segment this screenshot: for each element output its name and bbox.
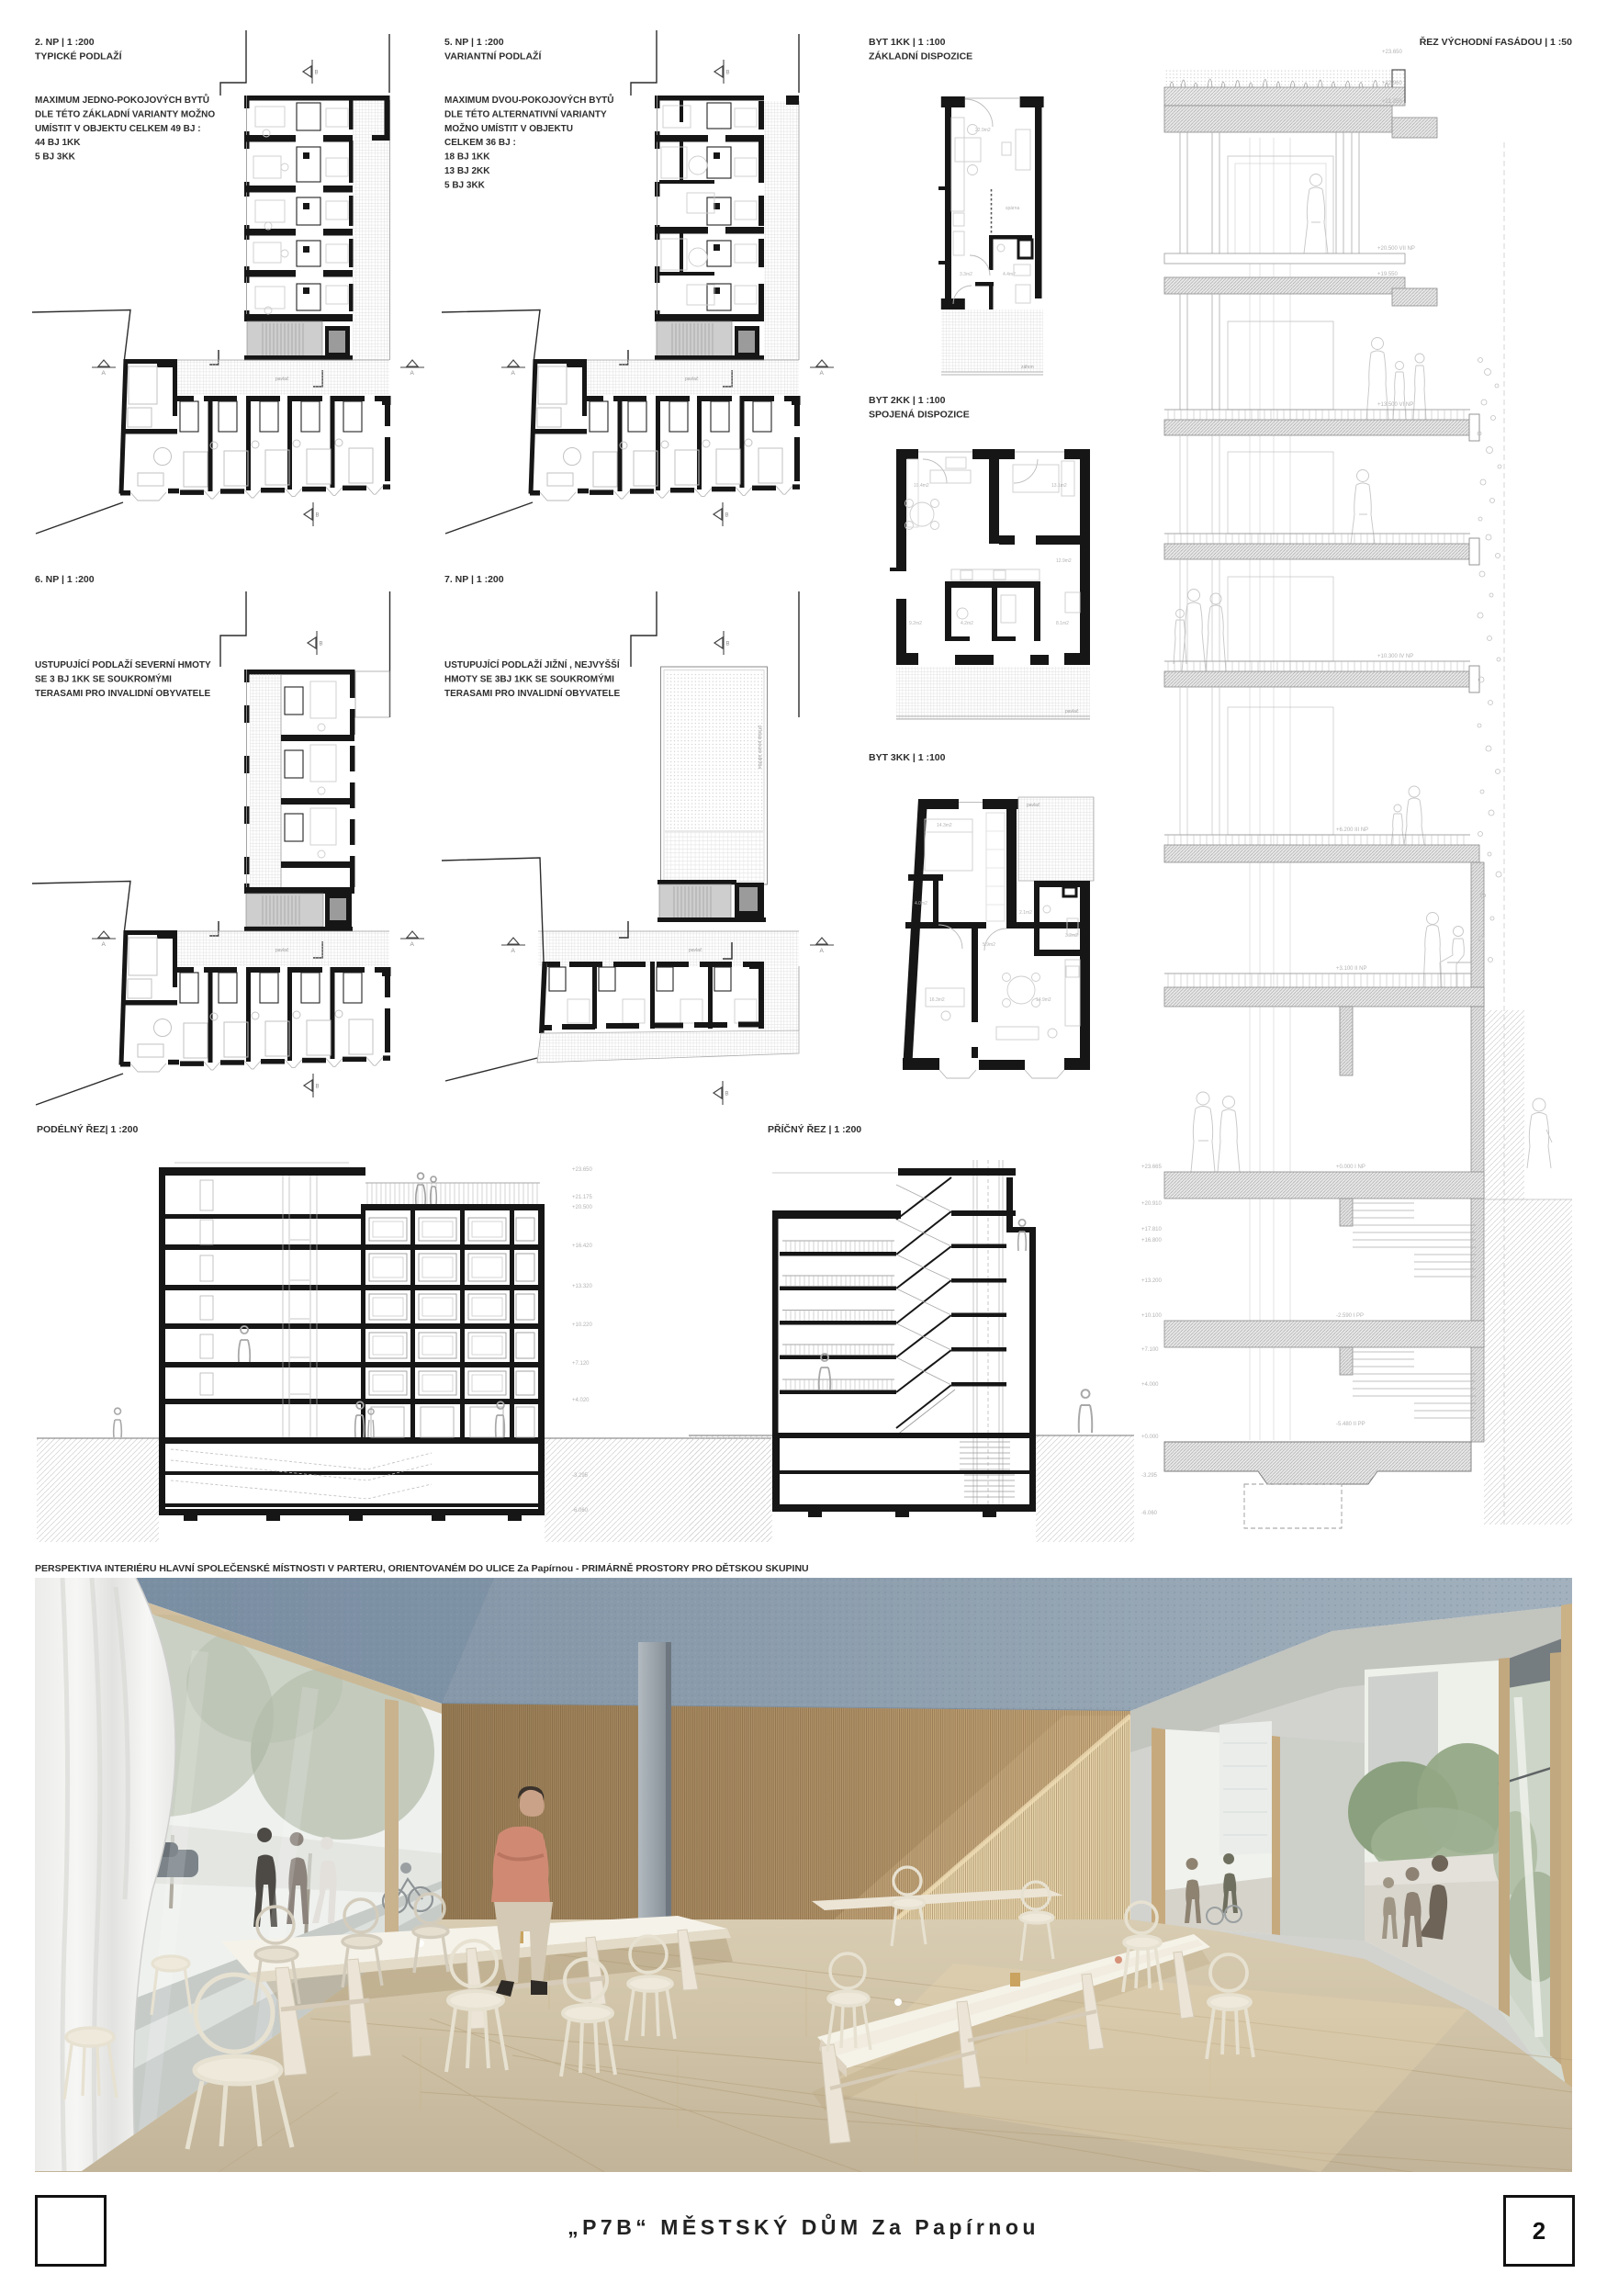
svg-text:+19.550: +19.550 xyxy=(1377,272,1399,277)
svg-text:VARIANTNÍ PODLAŽÍ: VARIANTNÍ PODLAŽÍ xyxy=(444,51,542,62)
svg-text:záhon: záhon xyxy=(1021,365,1034,370)
svg-text:5 BJ 3KK: 5 BJ 3KK xyxy=(444,180,486,190)
svg-text:-6.060: -6.060 xyxy=(1141,1511,1158,1516)
svg-text:14.9m2: 14.9m2 xyxy=(1036,997,1051,1003)
svg-text:DLE TÉTO ALTERNATIVNÍ VARIANTY: DLE TÉTO ALTERNATIVNÍ VARIANTY xyxy=(444,107,607,119)
svg-text:spárna: spárna xyxy=(1006,206,1020,211)
svg-text:+22.960: +22.960 xyxy=(1382,81,1403,86)
svg-text:+23.650: +23.650 xyxy=(572,1167,593,1173)
svg-text:HMOTY SE 3BJ 1KK SE SOUKROMÝMI: HMOTY SE 3BJ 1KK SE SOUKROMÝMI xyxy=(444,672,614,684)
svg-text:+7.100: +7.100 xyxy=(1141,1347,1159,1353)
svg-text:USTUPUJÍCÍ PODLAŽÍ SEVERNÍ HMO: USTUPUJÍCÍ PODLAŽÍ SEVERNÍ HMOTY xyxy=(35,658,211,670)
svg-text:BYT 2KK | 1 :100: BYT 2KK | 1 :100 xyxy=(869,395,946,406)
svg-text:-3.295: -3.295 xyxy=(1141,1473,1158,1479)
svg-text:5. NP | 1 :200: 5. NP | 1 :200 xyxy=(444,37,504,48)
svg-text:+20.910: +20.910 xyxy=(1141,1201,1163,1207)
svg-text:MAXIMUM JEDNO-POKOJOVÝCH BYTŮ: MAXIMUM JEDNO-POKOJOVÝCH BYTŮ xyxy=(35,93,209,106)
svg-text:PŘÍČNÝ ŘEZ | 1 :200: PŘÍČNÝ ŘEZ | 1 :200 xyxy=(768,1123,861,1135)
svg-text:BYT 3KK | 1 :100: BYT 3KK | 1 :100 xyxy=(869,752,946,763)
svg-text:+20.500 VII NP: +20.500 VII NP xyxy=(1377,246,1415,252)
svg-text:TYPICKÉ PODLAŽÍ: TYPICKÉ PODLAŽÍ xyxy=(35,51,123,62)
svg-text:+10.100: +10.100 xyxy=(1141,1313,1163,1319)
svg-text:+20.500: +20.500 xyxy=(572,1205,593,1210)
svg-text:pavlač: pavlač xyxy=(1027,803,1040,808)
svg-text:+4.000: +4.000 xyxy=(1141,1382,1159,1388)
svg-text:+13.500 VI NP: +13.500 VI NP xyxy=(1377,402,1413,408)
svg-text:+13.320: +13.320 xyxy=(572,1284,593,1289)
svg-text:7. NP | 1 :200: 7. NP | 1 :200 xyxy=(444,574,504,585)
svg-text:+16.420: +16.420 xyxy=(572,1244,593,1249)
svg-text:9.2m2: 9.2m2 xyxy=(909,621,922,626)
svg-text:TERASAMI PRO INVALIDNÍ OBYVATE: TERASAMI PRO INVALIDNÍ OBYVATELE xyxy=(35,687,210,699)
svg-text:ŘEZ VÝCHODNÍ FASÁDOU | 1 :50: ŘEZ VÝCHODNÍ FASÁDOU | 1 :50 xyxy=(1420,36,1572,48)
svg-text:MAXIMUM DVOU-POKOJOVÝCH BYTŮ: MAXIMUM DVOU-POKOJOVÝCH BYTŮ xyxy=(444,93,613,106)
svg-text:18 BJ 1KK: 18 BJ 1KK xyxy=(444,152,490,163)
svg-text:4.2m2: 4.2m2 xyxy=(961,621,973,626)
svg-text:+7.120: +7.120 xyxy=(572,1361,590,1367)
svg-text:-3.295: -3.295 xyxy=(572,1473,589,1479)
svg-text:SE 3 BJ 1KK SE SOUKROMÝMI: SE 3 BJ 1KK SE SOUKROMÝMI xyxy=(35,672,172,684)
svg-text:+6.200 III NP: +6.200 III NP xyxy=(1336,827,1368,833)
svg-text:-5.480 II PP: -5.480 II PP xyxy=(1336,1422,1365,1427)
svg-text:+17.810: +17.810 xyxy=(1141,1227,1163,1232)
svg-text:+10.220: +10.220 xyxy=(572,1322,593,1328)
svg-text:přístup pouze údržba: přístup pouze údržba xyxy=(757,726,762,769)
svg-text:MOŽNO UMÍSTIT V OBJEKTU: MOŽNO UMÍSTIT V OBJEKTU xyxy=(444,122,573,134)
svg-text:16.3m2: 16.3m2 xyxy=(929,997,945,1003)
svg-text:+0.000: +0.000 xyxy=(1141,1435,1159,1440)
svg-text:ZÁKLADNÍ DISPOZICE: ZÁKLADNÍ DISPOZICE xyxy=(869,51,972,62)
svg-text:+4.020: +4.020 xyxy=(572,1398,590,1403)
svg-text:4.0m2: 4.0m2 xyxy=(915,901,927,906)
svg-text:8.1m2: 8.1m2 xyxy=(1056,621,1069,626)
svg-text:PODÉLNÝ ŘEZ| 1 :200: PODÉLNÝ ŘEZ| 1 :200 xyxy=(37,1123,138,1135)
svg-text:-2.590 I PP: -2.590 I PP xyxy=(1336,1313,1364,1319)
svg-text:pavlač: pavlač xyxy=(689,948,702,953)
svg-text:TERASAMI PRO INVALIDNÍ OBYVATE: TERASAMI PRO INVALIDNÍ OBYVATELE xyxy=(444,687,620,699)
svg-text:12.9m2: 12.9m2 xyxy=(1056,558,1072,564)
svg-text:PERSPEKTIVA INTERIÉRU HLAVNÍ S: PERSPEKTIVA INTERIÉRU HLAVNÍ SPOLEČENSKÉ… xyxy=(35,1562,809,1574)
svg-text:2.1m2: 2.1m2 xyxy=(1019,910,1032,916)
svg-text:19.4m2: 19.4m2 xyxy=(914,483,929,489)
svg-text:BYT 1KK | 1 :100: BYT 1KK | 1 :100 xyxy=(869,37,946,48)
svg-text:USTUPUJÍCÍ PODLAŽÍ JIŽNÍ , NEJ: USTUPUJÍCÍ PODLAŽÍ JIŽNÍ , NEJVYŠŠÍ xyxy=(444,658,620,670)
svg-text:UMÍSTIT V OBJEKTU CELKEM 49 BJ: UMÍSTIT V OBJEKTU CELKEM 49 BJ : xyxy=(35,122,201,134)
svg-text:+21.175: +21.175 xyxy=(572,1195,593,1200)
svg-text:+23.650: +23.650 xyxy=(1382,50,1403,55)
svg-text:+16.800: +16.800 xyxy=(1141,1238,1163,1244)
svg-text:+3.100 II NP: +3.100 II NP xyxy=(1336,966,1367,972)
svg-text:pavlač: pavlač xyxy=(1065,709,1079,715)
svg-text:6. NP | 1 :200: 6. NP | 1 :200 xyxy=(35,574,95,585)
svg-text:DLE TÉTO ZÁKLADNÍ VARIANTY MOŽ: DLE TÉTO ZÁKLADNÍ VARIANTY MOŽNO xyxy=(35,107,215,119)
svg-text:-6.060: -6.060 xyxy=(572,1508,589,1514)
svg-text:44 BJ 1KK: 44 BJ 1KK xyxy=(35,138,81,148)
svg-text:SPOJENÁ DISPOZICE: SPOJENÁ DISPOZICE xyxy=(869,409,970,421)
svg-text:+13.200: +13.200 xyxy=(1141,1278,1163,1284)
svg-text:14.3m2: 14.3m2 xyxy=(937,823,952,828)
svg-text:+21.250: +21.250 xyxy=(1382,99,1403,105)
svg-text:+10.300 IV NP: +10.300 IV NP xyxy=(1377,654,1413,659)
svg-text:+23.665: +23.665 xyxy=(1141,1165,1163,1170)
svg-text:CELKEM 36 BJ :: CELKEM 36 BJ : xyxy=(444,138,516,148)
svg-text:+0.000 I NP: +0.000 I NP xyxy=(1336,1165,1365,1170)
svg-text:3.3m2: 3.3m2 xyxy=(960,272,972,277)
svg-text:13.1m2: 13.1m2 xyxy=(1051,483,1067,489)
svg-text:5 BJ 3KK: 5 BJ 3KK xyxy=(35,152,76,163)
svg-text:2. NP | 1 :200: 2. NP | 1 :200 xyxy=(35,37,95,48)
svg-text:13 BJ 2KK: 13 BJ 2KK xyxy=(444,166,490,176)
